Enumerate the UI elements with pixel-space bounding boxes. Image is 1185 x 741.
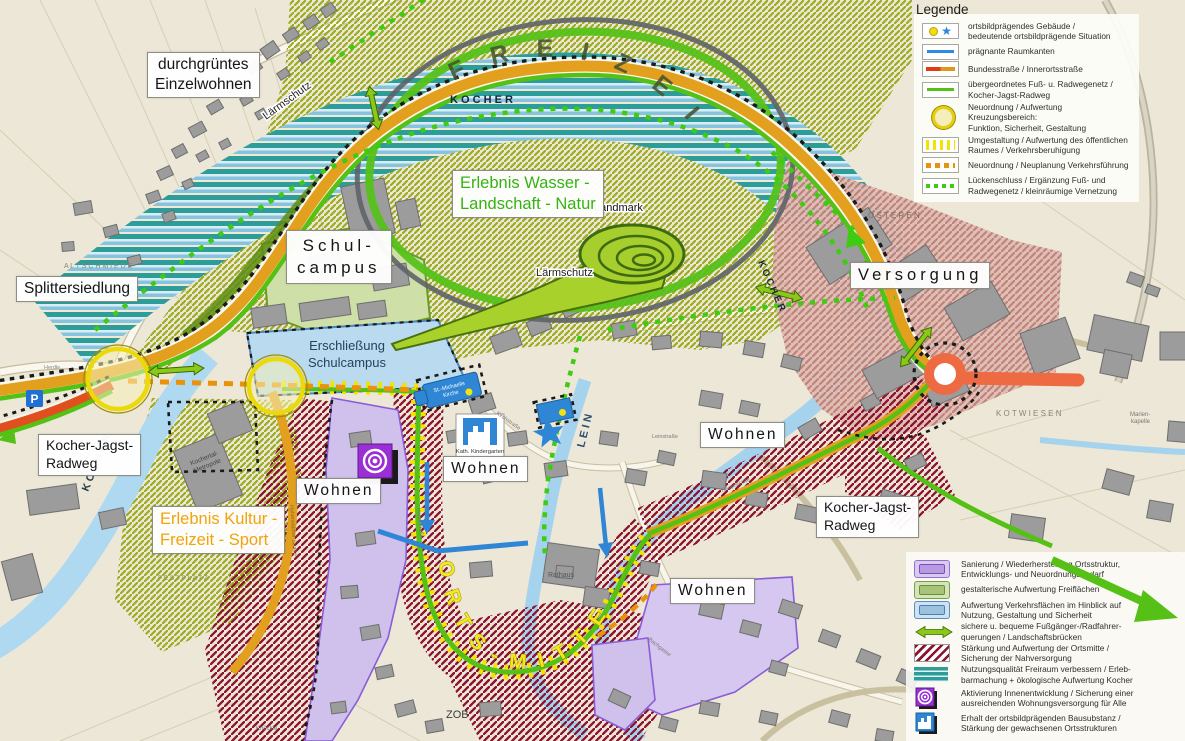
svg-text:Knöckle: Knöckle [256,726,278,732]
svg-text:K O T W I E S E N: K O T W I E S E N [996,409,1062,418]
legend-item: übergeordnetes Fuß- u. Radwegenetz / Koc… [922,79,1133,100]
legend-panel-bottom: Sanierung / Wiederherstellung Ortsstrukt… [906,552,1185,741]
landmark-spiral [580,225,684,283]
label-kocher-jagst-radweg-east: Kocher-Jagst- Radweg [816,496,919,538]
svg-text:Leinstraße: Leinstraße [652,434,678,440]
label-wohnen-2: Wohnen [443,456,528,482]
label-wohnen-1: Wohnen [296,478,381,504]
svg-text:ZOB: ZOB [446,709,469,721]
green-area-swatch-icon [914,581,950,599]
legend-title: Legende [916,2,969,17]
purple-area-swatch-icon [914,560,950,578]
label-erschliessung-schulcampus: Erschließung Schulcampus [270,336,424,373]
label-durchgruentes-einzelwohnen: durchgrüntes Einzelwohnen [147,52,260,98]
purple-rings-swatch-icon [914,686,940,710]
parking-icon: P [26,390,43,407]
legend-item: Aufwertung Verkehrsflächen im Hinblick a… [914,600,1179,621]
svg-text:A L T S C H M I E D E: A L T S C H M I E D E [64,263,133,270]
green-dots-swatch-icon [922,178,959,194]
teal-stripes-swatch-icon [914,667,948,682]
orange-dashes-swatch-icon [922,157,959,173]
double-arrow-swatch-icon [914,624,954,640]
blue-building-swatch-icon [914,711,940,735]
red-hatch-swatch-icon [914,644,950,662]
legend-item: gestalterische Aufwertung Freiflächen [914,581,1179,599]
yellow-dot-icon [929,27,938,36]
legend-item: Neuordnung / Neuplanung Verkehrsführung [922,157,1133,173]
legend-item: Aktivierung Innenentwicklung / Sicherung… [914,686,1179,710]
legend-item: Nutzungsqualität Freiraum verbessern / E… [914,664,1179,685]
blue-star-icon: ★ [941,26,952,36]
svg-text:K O C H E R: K O C H E R [450,94,513,106]
legend-item: Lückenschluss / Ergänzung Fuß- und Radwe… [922,175,1133,196]
legend-item: prägnante Raumkanten [922,44,1133,60]
svg-text:Herdle: Herdle [44,365,60,371]
kindergarten-marker: Kath. Kindergarten [456,414,504,458]
blue-area-swatch-icon [914,601,950,619]
svg-text:Lärmschutz: Lärmschutz [536,267,593,279]
green-line-swatch-icon [922,82,959,98]
legend-panel-top: ★ ortsbildprägendes Gebäude / bedeutende… [914,14,1139,202]
legend-item: Stärkung und Aufwertung der Ortsmitte / … [914,643,1179,664]
label-erlebnis-kultur: Erlebnis Kultur - Freizeit - Sport [152,506,285,554]
svg-text:kapelle: kapelle [1131,419,1151,425]
legend-item: Erhalt der ortsbildprägenden Bausubstanz… [914,711,1179,735]
label-splittersiedlung: Splittersiedlung [16,276,138,302]
building-star-swatch-icon: ★ [922,23,959,39]
yellow-stripes-swatch-icon [922,137,959,153]
label-erlebnis-wasser: Erlebnis Wasser - Landschaft - Natur [452,170,604,218]
legend-item: Bundesstraße / Innerortsstraße [922,61,1133,77]
svg-text:P: P [30,392,38,406]
svg-text:Rathaus: Rathaus [548,572,575,579]
svg-text:F E S T P L A T Z: F E S T P L A T Z [158,575,208,582]
blue-line-swatch-icon [922,44,959,60]
label-wohnen-3: Wohnen [700,422,785,448]
legend-item: Neuordnung / Aufwertung Kreuzungsbereich… [922,102,1133,133]
label-schulcampus: Schul- campus [286,230,392,284]
planning-map-stage: St.-Michaelis Kirche Kath. Kindergarten … [0,0,1185,741]
svg-text:Marien-: Marien- [1130,412,1150,418]
label-kocher-jagst-radweg-west: Kocher-Jagst- Radweg [38,434,141,476]
legend-item: Sanierung / Wiederherstellung Ortsstrukt… [914,559,1179,580]
yellow-circle-swatch-icon [932,106,955,129]
road-swatch-icon [922,61,959,77]
svg-text:Kath. Kindergarten: Kath. Kindergarten [456,449,504,455]
svg-text:O S T E R E N: O S T E R E N [868,211,920,220]
label-wohnen-4: Wohnen [670,578,755,604]
legend-item: sichere u. bequeme Fußgänger-/Radfahrer-… [914,621,1179,642]
legend-item: Umgestaltung / Aufwertung des öffentlich… [922,135,1133,156]
legend-item: ★ ortsbildprägendes Gebäude / bedeutende… [922,21,1133,42]
label-versorgung: Versorgung [850,262,990,289]
